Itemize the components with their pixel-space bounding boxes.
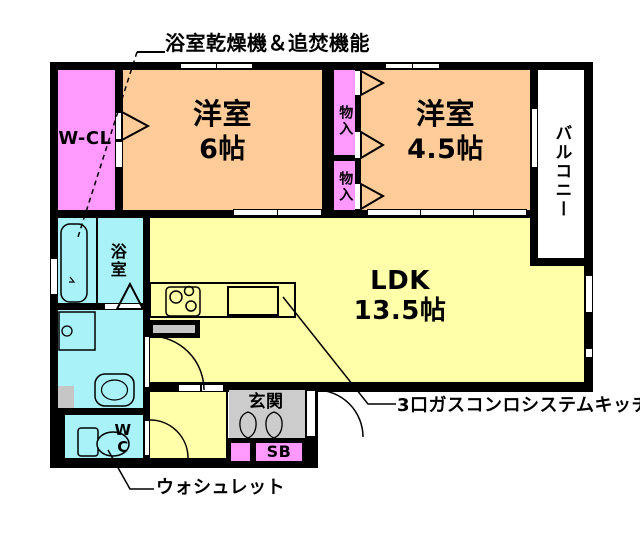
annotation-kitchen: 3口ガスコンロシステムキッチ [397,395,640,417]
label-room45: 洋室 [361,98,530,132]
window-room45-top [385,63,413,69]
window-room6-top [180,63,217,69]
door-wc-leaf [144,420,150,456]
label-room6-size: 6帖 [123,134,322,166]
door-storage-gap [355,184,361,209]
door-storage-gap [355,71,361,95]
wall-wcl-right [115,70,123,210]
door-washroom-leaf [144,336,150,388]
opening-ldk-corridor [178,384,201,392]
wall-top [50,62,593,70]
front-door-leaf [306,390,316,437]
label-room6: 洋室 [123,98,322,132]
opening-ldk-corridor [201,384,224,392]
label-genkan: 玄関 [240,392,292,412]
label-wcl: W-CL [54,128,116,150]
label-wc: W C [108,420,138,458]
wall-wc-left [58,415,65,458]
floor-plan: W-CL 洋室 6帖 物入 物入 洋室 4.5帖 バルコニー 浴室 LDK 13… [0,0,640,553]
label-room45-size: 4.5帖 [361,134,530,166]
kitchen-partition-inner [153,325,195,333]
label-balcony: バルコニー [548,110,574,232]
label-sb: SB [256,443,302,461]
wall-balcony-bottom [530,258,593,266]
label-ldk-size: 13.5帖 [325,296,475,326]
label-ldk: LDK [325,266,475,296]
front-door-arc [316,390,363,437]
annotation-bath-dryer: 浴室乾燥機＆追焚機能 [165,32,370,54]
sliding-door-room45-ldk [367,209,421,216]
label-storage-upper: 物入 [334,96,355,146]
sliding-door-room6-ldk [233,209,278,216]
shoebox-cell-small [231,443,250,461]
window-ldk-right [585,348,593,358]
window-room45-balcony [531,108,538,168]
room-bath [58,218,143,303]
window-bath-left [50,258,58,295]
sliding-door-room45-ldk [473,209,527,216]
window-room45-top [412,63,440,69]
window-room6-top [216,63,253,69]
opening-bath-washroom [105,304,141,309]
label-storage-lower: 物入 [334,166,355,208]
label-bath: 浴室 [104,237,130,285]
door-wcl-leaf [115,141,123,168]
sliding-door-room6-ldk [277,209,322,216]
window-ldk-right [585,275,593,313]
door-wcl-leaf [115,112,123,140]
wall-right [584,62,593,392]
sliding-door-room45-ldk [420,209,474,216]
annotation-washlet: ウォシュレット [156,477,285,499]
wall-storage-divider [334,155,355,161]
wall-wash-wc-divider [58,408,150,415]
corridor [150,392,226,458]
washer-space [58,386,74,408]
wall-room6-right [322,70,334,210]
